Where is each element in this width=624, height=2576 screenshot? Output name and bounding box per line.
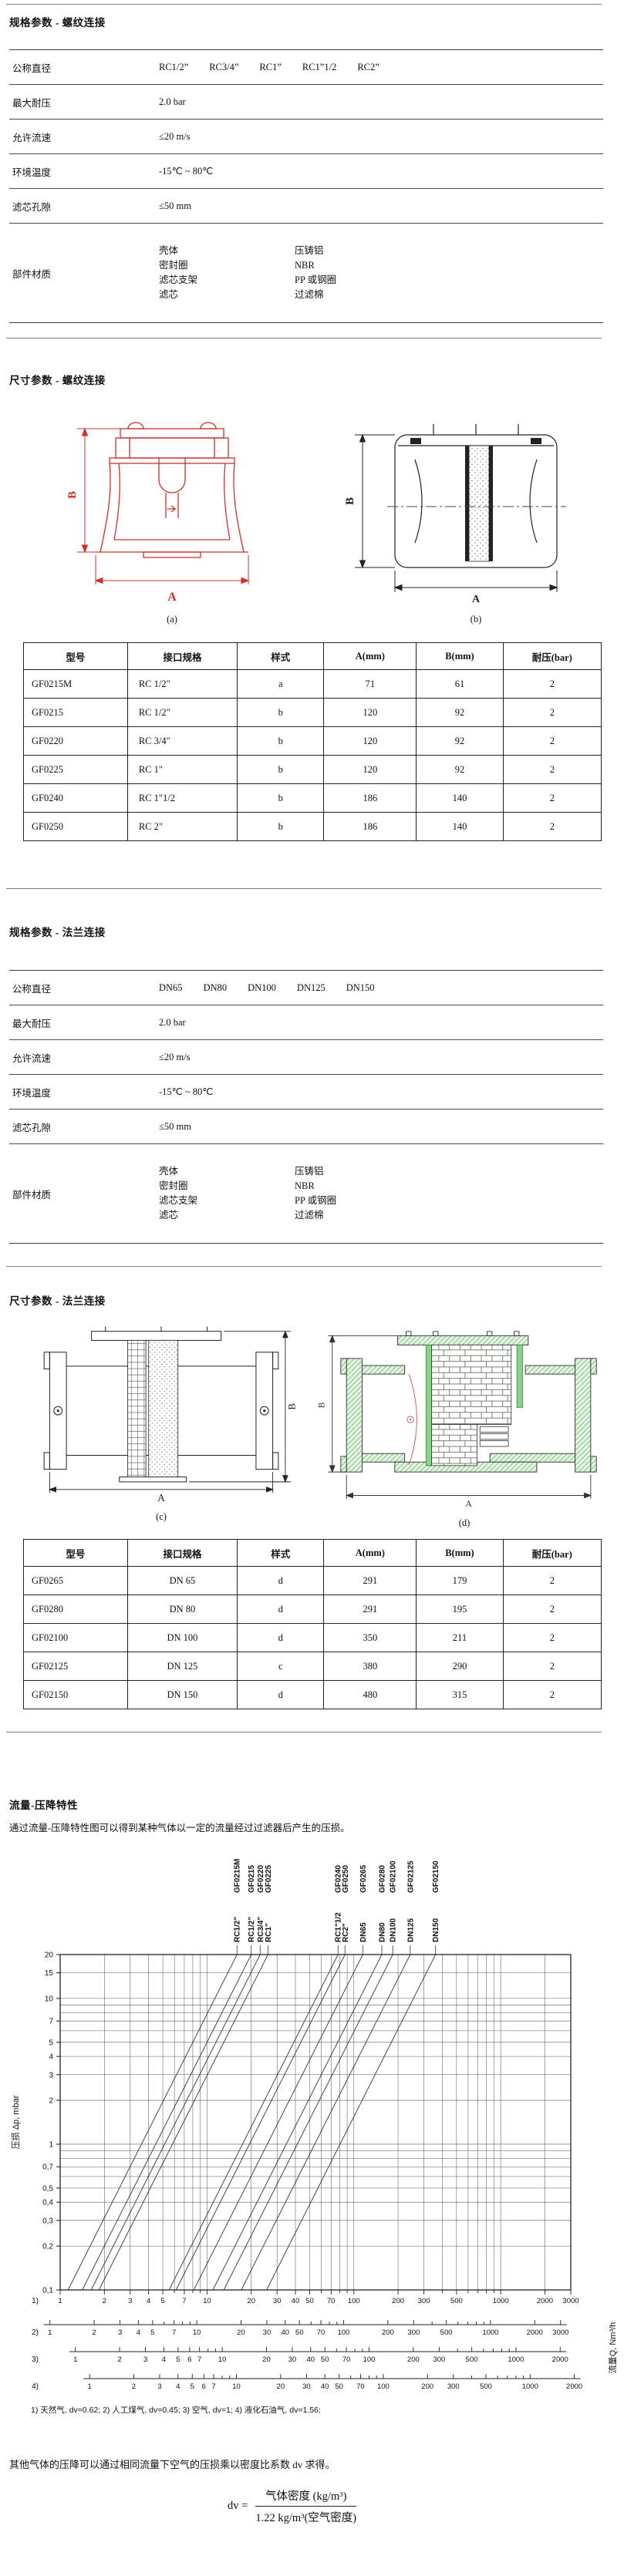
material-line: 滤芯过滤棉 [159,1208,336,1223]
material-line: 滤芯支架PP 或钢圈 [159,1194,336,1208]
column-header: 样式 [238,1540,324,1567]
table-row: GF0225RC 1"b120922 [24,756,602,784]
x-tick-label: 4 [137,2329,140,2337]
table-row: GF0220RC 3/4"b120922 [24,727,602,756]
dimension-a-label: A [465,1498,472,1509]
spec-value: RC1”1/2 [302,62,336,73]
x-tick-label: 3 [128,2297,132,2305]
spec-values: ≤50 mm [159,200,212,212]
table-cell: 71 [324,670,417,699]
series-model-label: GF02100 [390,1860,398,1893]
material-part: 壳体 [159,1164,295,1179]
x-tick-label: 1000 [493,2297,509,2305]
y-axis-label: 压损 Δp, mbar [10,2095,21,2149]
x-tick-label: 5 [176,2355,180,2364]
y-tick-label: 0,7 [42,2164,53,2172]
series-size-label: DN125 [406,1918,415,1942]
housing-outline-red [96,423,248,557]
spec-values: 2.0 bar [159,96,207,108]
spec-label: 环境温度 [9,1085,159,1099]
table-cell: RC 1" [127,756,237,784]
table-cell: c [238,1652,324,1681]
x-tick-label: 3 [143,2355,147,2364]
table-cell: 2 [503,813,601,841]
seal-block-right [531,438,541,444]
table-cell: d [238,1624,324,1652]
gas-scale-id: 4) [32,2382,39,2391]
spec-label: 允许流速 [9,1050,159,1065]
x-tick-label: 30 [273,2297,282,2305]
material-line: 密封圈NBR [159,258,336,273]
column-header: 耐压(bar) [503,1540,601,1567]
flow-description: 通过流量-压降特性图可以得到某种气体以一定的流量经过过滤器后产生的压损。 [9,1820,350,1834]
series-model-label: GF02150 [432,1860,440,1893]
x-tick-label: 2000 [552,2355,568,2364]
material-value: PP 或钢圈 [295,273,336,288]
material-part: 滤芯支架 [159,273,295,288]
gas-scale-id: 3) [32,2355,39,2364]
x-tick-label: 2 [132,2382,136,2391]
x-tick-label: 7 [211,2382,215,2391]
table-cell: 186 [324,784,417,813]
material-part: 密封圈 [159,1179,295,1194]
spec-values: 2.0 bar [159,1017,207,1029]
table-cell: 350 [324,1624,417,1652]
table-cell: 186 [324,813,417,841]
dimension-a-lines [346,1475,591,1499]
x-tick-label: 500 [480,2382,492,2391]
x-tick-label: 500 [450,2297,463,2305]
series-line [68,1955,237,2290]
column-header: 型号 [24,1540,128,1567]
series-model-label: GF0225 [265,1864,273,1893]
table-cell: 480 [324,1681,417,1709]
table-body: GF0265DN 65d2911792GF0280DN 80d2911952GF… [24,1567,602,1709]
column-header: B(mm) [417,643,503,670]
spec-label: 公称直径 [9,981,159,995]
table-cell: 2 [503,699,601,727]
table-cell: 2 [503,1652,601,1681]
material-value: 过滤棉 [295,1208,324,1223]
figure-b-caption: (b) [333,614,619,625]
x-tick-label: 500 [440,2329,453,2337]
table-row: GF02125DN 125c3802902 [24,1652,602,1681]
table-row: GF0240RC 1"1/2b1861402 [24,784,602,813]
figure-d-caption: (d) [318,1517,611,1529]
table-head: 型号接口规格样式A(mm)B(mm)耐压(bar) [24,643,602,670]
table-row: GF0215MRC 1/2"a71612 [24,670,602,699]
material-value: 压铸铝 [295,244,324,258]
figure-b: B A (b) [333,401,619,625]
series-size-label: RC1" [265,1923,273,1942]
x-tick-label: 200 [382,2329,394,2337]
section-title-thread-dim: 尺寸参数 - 螺纹连接 [9,372,106,387]
table-cell: DN 125 [127,1652,237,1681]
series-model-label: GF0250 [342,1864,350,1893]
x-tick-label: 4 [147,2297,150,2305]
spec-value: 2.0 bar [159,96,186,108]
series-model-label: GF02125 [406,1860,415,1893]
series-model-label: GF0215 [248,1864,256,1893]
table-cell: d [238,1595,324,1624]
material-line: 密封圈NBR [159,1179,336,1194]
table-head: 型号接口规格样式A(mm)B(mm)耐压(bar) [24,1540,602,1567]
dimension-b-label: B [344,497,356,505]
material-part: 滤芯 [159,288,295,302]
table-cell: GF0220 [24,727,128,756]
gas-scale-id: 2) [32,2329,39,2337]
y-tick-label: 0,1 [42,2287,53,2295]
material-value: 过滤棉 [295,288,324,302]
spec-values: ≤20 m/s [159,131,211,143]
series-model-label: GF0280 [379,1864,387,1893]
table-cell: GF0265 [24,1567,128,1595]
column-header: 接口规格 [127,1540,237,1567]
spec-row: 允许流速≤20 m/s [9,1040,603,1075]
x-tick-label: 300 [433,2355,445,2364]
column-header: B(mm) [417,1540,503,1567]
spec-values: -15℃ ~ 80℃ [159,165,234,177]
table-cell: 140 [417,813,503,841]
spec-value: ≤20 m/s [159,131,191,143]
table-cell: 380 [324,1652,417,1681]
dimension-a-label: A [472,594,481,605]
x-tick-label: 1000 [508,2355,524,2364]
table-cell: RC 3/4" [127,727,237,756]
table-body: GF0215MRC 1/2"a71612GF0215RC 1/2"b120922… [24,670,602,841]
series-size-label: RC1/2" [248,1917,256,1942]
spec-value: RC1/2” [159,62,188,73]
series-line [241,1955,410,2290]
flange-spec-table: 公称直径DN65DN80DN100DN125DN150最大耐压2.0 bar允许… [9,970,603,1244]
column-header: A(mm) [324,1540,417,1567]
gas-scale-id: 1) [32,2297,39,2305]
x-tick-label: 2000 [537,2297,553,2305]
table-cell: 61 [417,670,503,699]
table-header-row: 型号接口规格样式A(mm)B(mm)耐压(bar) [24,643,602,670]
spec-label: 最大耐压 [9,1015,159,1030]
x-tick-label: 1000 [522,2382,538,2391]
dimension-b-label: B [66,491,79,499]
x-tick-label: 3 [118,2329,122,2337]
table-cell: DN 100 [127,1624,237,1652]
table-cell: GF0215 [24,699,128,727]
x-tick-label: 40 [281,2329,289,2337]
figure-a-caption: (a) [45,614,299,625]
x-tick-label: 20 [277,2382,285,2391]
x-tick-label: 7 [197,2355,201,2364]
x-tick-label: 20 [247,2297,255,2305]
table-cell: GF02100 [24,1624,128,1652]
table-cell: 120 [324,756,417,784]
figure-d-flange-cutaway-view: B A [318,1322,611,1509]
filter-support-grid [128,1340,147,1477]
dimension-a-lines [395,571,557,592]
table-cell: b [238,699,324,727]
x-tick-label: 2 [92,2329,96,2337]
y-tick-label: 20 [45,1951,54,1960]
y-tick-label: 5 [49,2039,53,2047]
x-tick-label: 2000 [527,2329,543,2337]
thread-dimension-figures: B A (a) [0,401,624,625]
table-cell: 2 [503,727,601,756]
material-value: NBR [295,1179,315,1194]
x-tick-label: 1 [73,2355,77,2364]
gasket-strip-left [426,1345,431,1465]
series-size-label: DN80 [379,1922,387,1942]
table-cell: 291 [324,1595,417,1624]
table-cell: RC 1/2" [127,670,237,699]
filter-block-upper [432,1345,511,1424]
spec-label: 部件材质 [9,266,159,281]
table-cell: GF02125 [24,1652,128,1681]
x-axis-label: 流量Q, Nm³/h [607,2322,618,2374]
y-tick-label: 0,4 [42,2199,53,2207]
table-cell: a [238,670,324,699]
x-tick-label: 1 [48,2329,52,2337]
thread-models-table: 型号接口规格样式A(mm)B(mm)耐压(bar)GF0215MRC 1/2"a… [23,642,602,841]
spec-value: ≤20 m/s [159,1052,191,1063]
section-divider [6,4,602,5]
gasket-strip-right [517,1345,522,1407]
table-cell: DN 65 [127,1567,237,1595]
figure-c-flange-section-view: A B [22,1322,301,1503]
table-header-row: 型号接口规格样式A(mm)B(mm)耐压(bar) [24,1540,602,1567]
spec-values: ≤50 mm [159,1121,212,1133]
x-tick-label: 50 [305,2297,314,2305]
material-line: 壳体压铸铝 [159,244,336,258]
spec-row: 环境温度-15℃ ~ 80℃ [9,1075,603,1110]
table-row: GF0215RC 1/2"b120922 [24,699,602,727]
series-line [224,1955,393,2290]
x-tick-label: 50 [321,2355,329,2364]
spec-value: RC2” [357,62,379,73]
x-tick-label: 5 [150,2329,154,2337]
dv-formula: dv = 气体密度 (kg/m³) 1.22 kg/m³(空气密度) [228,2487,356,2525]
series-model-label: GF0265 [359,1864,368,1893]
x-tick-label: 100 [348,2297,360,2305]
y-tick-label: 10 [45,1995,54,2003]
spec-values: -15℃ ~ 80℃ [159,1086,234,1098]
formula-numerator: 气体密度 (kg/m³) [255,2487,356,2507]
spec-label: 部件材质 [9,1187,159,1201]
material-value: NBR [295,258,315,273]
material-part: 壳体 [159,244,295,258]
table-cell: d [238,1681,324,1709]
table-cell: b [238,813,324,841]
x-tick-label: 30 [302,2382,311,2391]
table-cell: 2 [503,756,601,784]
table-cell: 120 [324,699,417,727]
material-value: PP 或钢圈 [295,1194,336,1208]
spec-row: 部件材质壳体压铸铝密封圈NBR滤芯支架PP 或钢圈滤芯过滤棉 [9,1144,603,1244]
table-row: GF02150DN 150d4803152 [24,1681,602,1709]
material-line: 滤芯过滤棉 [159,288,336,302]
figure-b-threaded-section-view: B A [333,401,619,605]
section-divider [6,888,602,889]
table-cell: 2 [503,784,601,813]
x-tick-label: 100 [338,2329,350,2337]
x-tick-label: 30 [263,2329,272,2337]
dimension-b-label: B [287,1403,298,1409]
table-cell: GF0240 [24,784,128,813]
x-tick-label: 1 [58,2297,62,2305]
table-cell: 92 [417,727,503,756]
table-cell: RC 1/2" [127,699,237,727]
table-cell: d [238,1567,324,1595]
spec-value: RC1” [259,62,281,73]
y-tick-label: 0,2 [42,2243,53,2251]
table-cell: b [238,727,324,756]
gas-density-footnote: 1) 天然气, dv=0.62; 2) 人工煤气, dv=0.45; 3) 空气… [31,2404,321,2416]
spec-row: 滤芯孔隙≤50 mm [9,189,603,224]
dimension-a-label: A [157,1492,165,1503]
x-tick-label: 30 [288,2355,297,2364]
series-line [83,1955,251,2290]
x-tick-label: 200 [392,2297,404,2305]
table-cell: 120 [324,727,417,756]
spec-value: RC3/4” [209,62,238,73]
spec-value: ≤50 mm [159,200,191,212]
flow-pressure-drop-chart: 2015107543210,70,50,40,30,20,1压损 Δp, mba… [0,1843,624,2394]
material-line: 壳体压铸铝 [159,1164,336,1179]
table-cell: 140 [417,784,503,813]
flange-dimension-figures: A B (c) [0,1322,624,1529]
spec-row: 最大耐压2.0 bar [9,1005,603,1040]
x-tick-label: 5 [160,2297,164,2305]
x-tick-label: 4 [162,2355,166,2364]
series-line [169,1955,338,2290]
x-tick-label: 50 [295,2329,304,2337]
datasheet-page: 规格参数 - 螺纹连接 公称直径RC1/2”RC3/4”RC1”RC1”1/2R… [0,0,624,2576]
material-part: 滤芯支架 [159,1194,295,1208]
support-plates [480,1426,508,1446]
column-header: 样式 [238,643,324,670]
material-line: 滤芯支架PP 或钢圈 [159,273,336,288]
x-tick-label: 7 [172,2329,176,2337]
x-tick-label: 70 [356,2382,365,2391]
y-tick-label: 0,5 [42,2184,53,2193]
table-cell: GF02150 [24,1681,128,1709]
section-title-flange-dim: 尺寸参数 - 法兰连接 [9,1292,106,1308]
x-tick-label: 20 [237,2329,245,2337]
spec-values: 壳体压铸铝密封圈NBR滤芯支架PP 或钢圈滤芯过滤棉 [159,244,336,302]
x-tick-label: 2000 [566,2382,582,2391]
dimension-b-lines [77,429,120,552]
table-cell: b [238,756,324,784]
filter-frame-right [489,446,493,561]
table-cell: 211 [417,1624,503,1652]
table-cell: RC 1"1/2 [127,784,237,813]
x-tick-label: 6 [187,2355,191,2364]
dimension-b-lines [328,1335,397,1472]
dimension-a-label: A [167,591,177,604]
material-part: 密封圈 [159,258,295,273]
spec-label: 公称直径 [9,60,159,75]
spec-values: 壳体压铸铝密封圈NBR滤芯支架PP 或钢圈滤芯过滤棉 [159,1164,336,1223]
x-tick-label: 300 [407,2329,420,2337]
dimension-a-lines [96,555,248,584]
y-tick-label: 15 [45,1969,54,1978]
y-tick-label: 4 [49,2053,53,2062]
x-tick-label: 70 [317,2329,325,2337]
spec-values: ≤20 m/s [159,1052,211,1063]
x-tick-label: 2 [117,2355,121,2364]
spec-values: DN65DN80DN100DN125DN150 [159,982,396,994]
filter-frame-left [465,446,469,561]
spec-label: 滤芯孔隙 [9,199,159,214]
table-cell: 92 [417,699,503,727]
spec-row: 最大耐压2.0 bar [9,85,603,120]
table-row: GF0250RC 2"b1861402 [24,813,602,841]
table-cell: 2 [503,1624,601,1652]
x-tick-label: 1 [87,2382,91,2391]
x-tick-label: 300 [447,2382,460,2391]
x-tick-label: 40 [292,2297,300,2305]
table-cell: RC 2" [127,813,237,841]
x-tick-label: 10 [203,2297,211,2305]
x-tick-label: 50 [335,2382,343,2391]
inlet-center-dot [410,1419,411,1420]
table-cell: 290 [417,1652,503,1681]
x-tick-label: 100 [377,2382,390,2391]
table-cell: GF0225 [24,756,128,784]
x-tick-label: 200 [407,2355,420,2364]
x-tick-label: 100 [363,2355,376,2364]
spec-row: 环境温度-15℃ ~ 80℃ [9,154,603,189]
series-size-label: DN150 [432,1918,440,1942]
formula-denominator: 1.22 kg/m³(空气密度) [255,2507,356,2525]
spec-value: DN100 [248,982,276,994]
figure-a: B A (a) [45,401,299,625]
column-header: 接口规格 [127,643,237,670]
figure-a-threaded-front-view: B A [45,401,299,605]
dimension-b-label: B [318,1402,327,1408]
spec-values: RC1/2”RC3/4”RC1”RC1”1/2RC2” [159,62,400,73]
spec-value: 2.0 bar [159,1017,186,1029]
dv-explanation: 其他气体的压降可以通过相同流量下空气的压损乘以密度比系数 dv 求得。 [9,2456,336,2471]
spec-value: -15℃ ~ 80℃ [159,1086,213,1098]
x-tick-label: 10 [218,2355,227,2364]
section-title-flange-spec: 规格参数 - 法兰连接 [9,924,106,939]
series-line [99,1955,268,2290]
figure-c-caption: (c) [22,1511,301,1523]
dimension-b-lines [189,1332,291,1482]
spec-row: 滤芯孔隙≤50 mm [9,1110,603,1144]
dimension-b-lines [355,435,395,567]
spec-row: 允许流速≤20 m/s [9,120,603,154]
spec-label: 环境温度 [9,164,159,179]
table-cell: 291 [324,1567,417,1595]
x-tick-label: 3 [157,2382,161,2391]
series-line [194,1955,363,2290]
spec-value: DN65 [159,982,183,994]
x-tick-label: 6 [202,2382,206,2391]
formula-lhs: dv = [228,2500,248,2513]
table-row: GF02100DN 100d3502112 [24,1624,602,1652]
series-line [267,1955,436,2290]
x-tick-label: 3000 [562,2297,578,2305]
spec-value: DN150 [346,982,375,994]
section-divider [6,1266,602,1267]
series-model-label: GF0215M [234,1859,242,1893]
figure-d: B A (d) [318,1322,611,1529]
table-cell: GF0280 [24,1595,128,1624]
x-tick-label: 7 [182,2297,186,2305]
x-tick-label: 10 [232,2382,241,2391]
spec-value: ≤50 mm [159,1121,191,1133]
series-size-label: DN65 [359,1922,368,1942]
